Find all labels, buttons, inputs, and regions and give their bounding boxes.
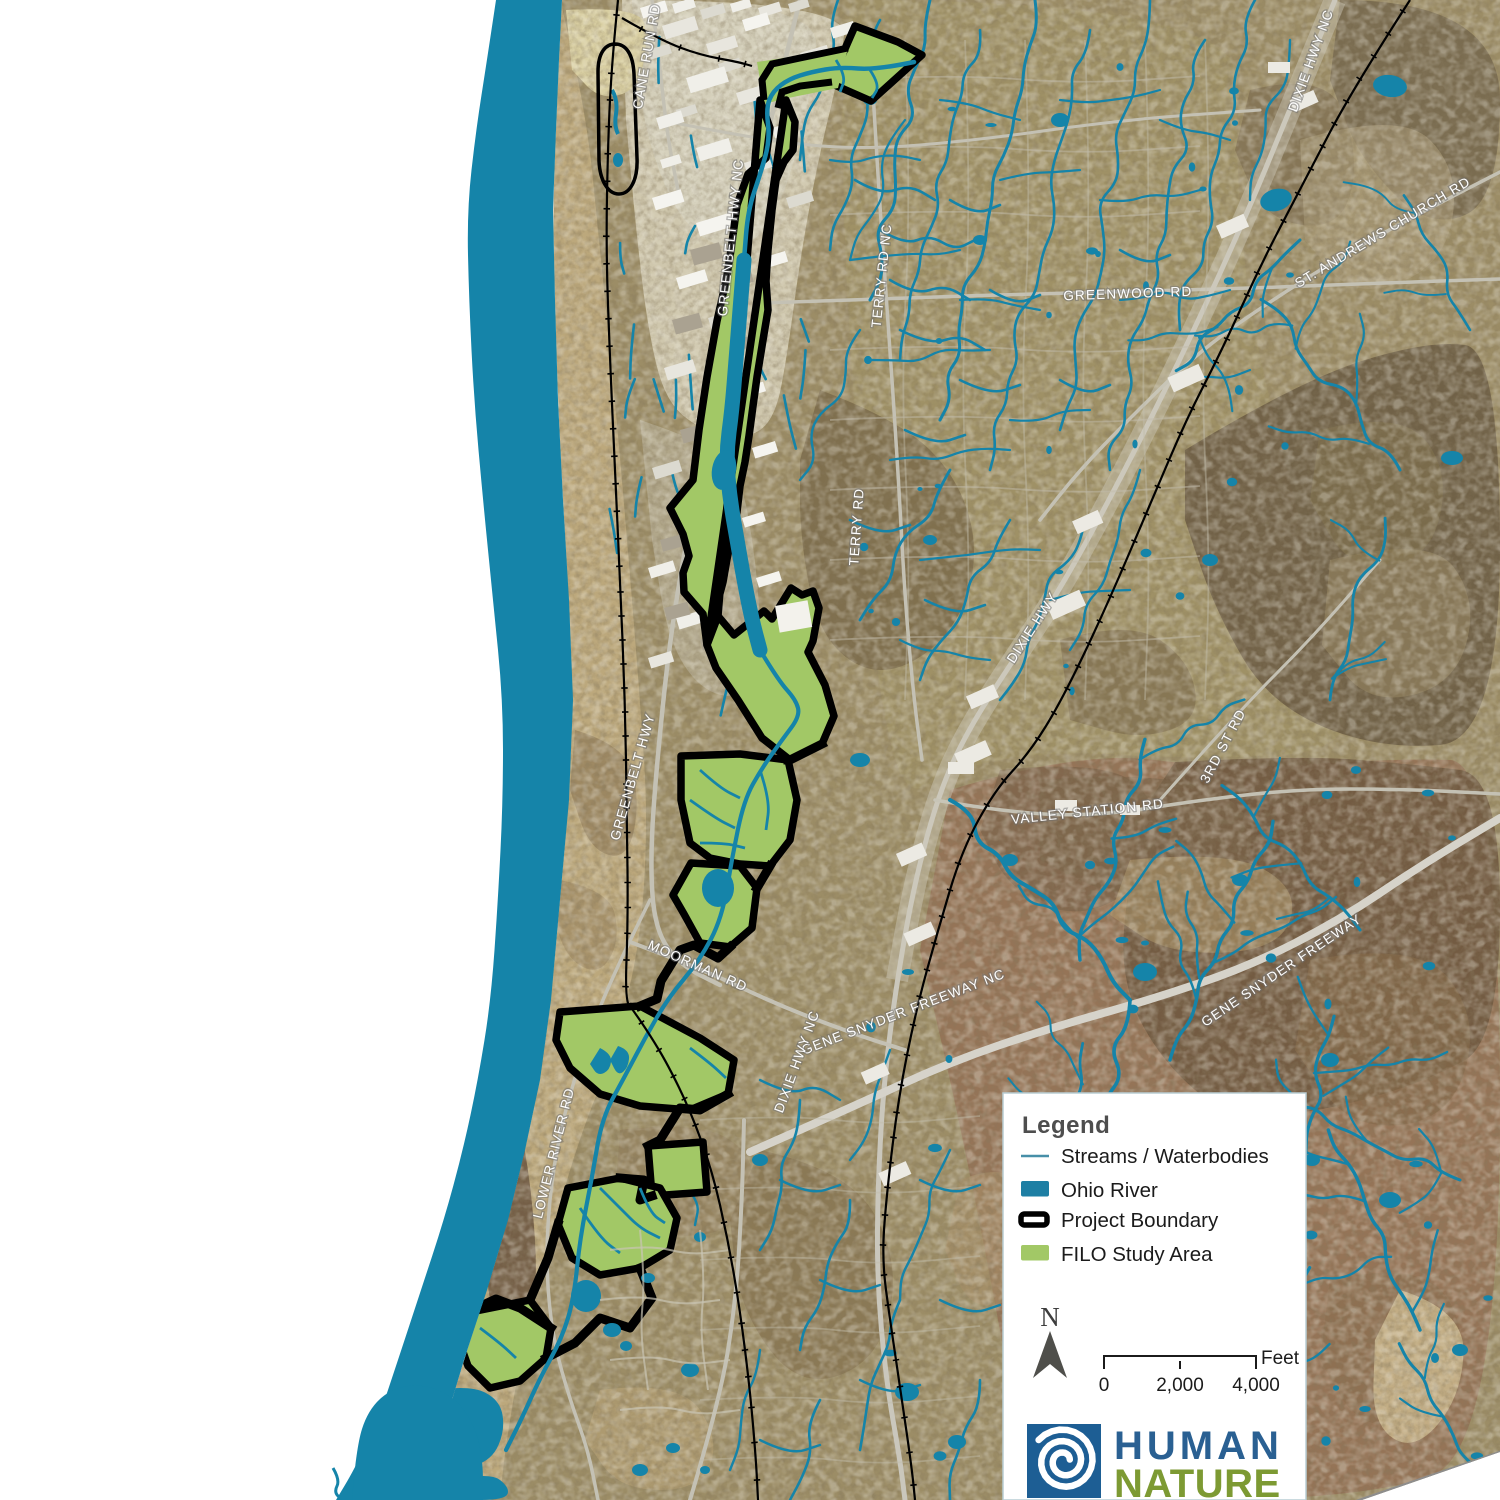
- svg-text:Streams / Waterbodies: Streams / Waterbodies: [1061, 1145, 1269, 1168]
- svg-text:0: 0: [1099, 1375, 1110, 1396]
- svg-text:2,000: 2,000: [1156, 1375, 1204, 1396]
- svg-text:N: N: [1040, 1302, 1060, 1332]
- svg-text:FILO Study Area: FILO Study Area: [1061, 1243, 1213, 1266]
- svg-text:Legend: Legend: [1022, 1112, 1110, 1139]
- svg-text:Feet: Feet: [1261, 1348, 1300, 1369]
- svg-text:4,000: 4,000: [1232, 1375, 1280, 1396]
- svg-text:Project Boundary: Project Boundary: [1061, 1209, 1219, 1232]
- svg-text:Ohio River: Ohio River: [1061, 1179, 1158, 1202]
- svg-text:NATURE: NATURE: [1114, 1462, 1281, 1500]
